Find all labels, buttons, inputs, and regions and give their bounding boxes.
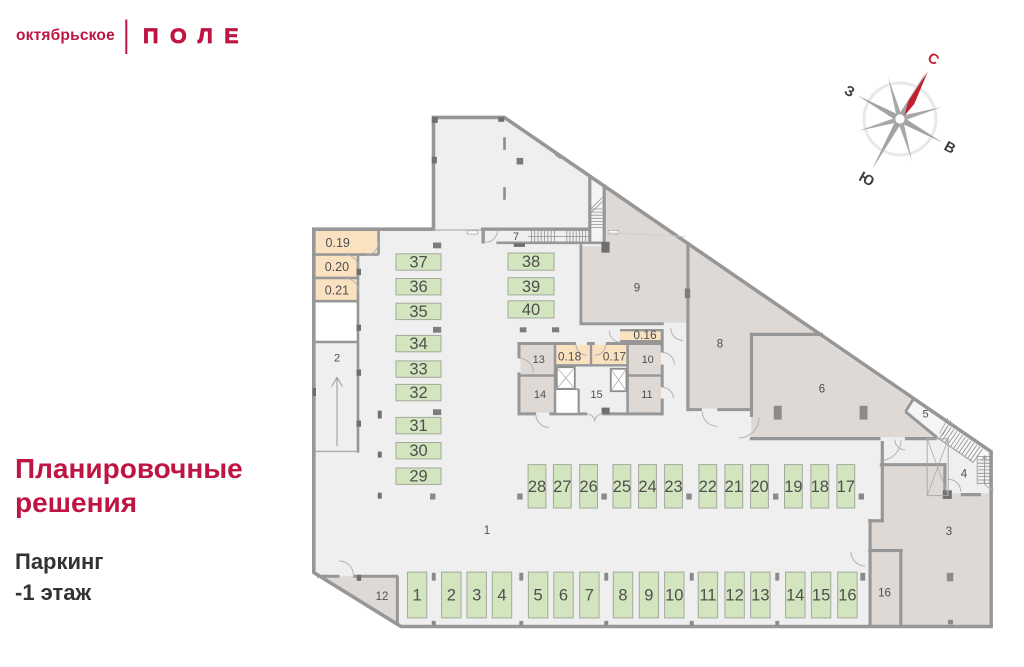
svg-text:0.18: 0.18 <box>558 349 582 363</box>
svg-text:1: 1 <box>413 587 422 605</box>
svg-text:7: 7 <box>513 231 519 243</box>
svg-text:3: 3 <box>946 526 952 538</box>
svg-text:10: 10 <box>642 354 654 366</box>
svg-text:5: 5 <box>534 587 543 605</box>
svg-text:19: 19 <box>784 478 802 496</box>
svg-text:21: 21 <box>725 478 743 496</box>
svg-text:9: 9 <box>644 587 653 605</box>
svg-text:32: 32 <box>409 384 427 402</box>
svg-text:40: 40 <box>522 301 540 319</box>
svg-text:23: 23 <box>664 478 682 496</box>
svg-text:13: 13 <box>751 587 769 605</box>
svg-text:39: 39 <box>522 278 540 296</box>
svg-text:1: 1 <box>484 525 490 537</box>
svg-text:24: 24 <box>638 478 656 496</box>
svg-text:33: 33 <box>409 361 427 379</box>
svg-text:Планировочные: Планировочные <box>15 453 243 484</box>
svg-text:0.20: 0.20 <box>325 260 349 274</box>
svg-text:26: 26 <box>579 478 597 496</box>
svg-text:34: 34 <box>409 335 427 353</box>
svg-text:25: 25 <box>613 478 631 496</box>
svg-text:8: 8 <box>618 587 627 605</box>
svg-text:16: 16 <box>838 587 856 605</box>
svg-text:решения: решения <box>15 487 137 518</box>
svg-text:2: 2 <box>447 587 456 605</box>
svg-text:0.21: 0.21 <box>325 284 349 298</box>
svg-text:17: 17 <box>837 478 855 496</box>
svg-text:15: 15 <box>590 389 602 401</box>
svg-text:3: 3 <box>472 587 481 605</box>
svg-text:0.17: 0.17 <box>603 349 627 363</box>
svg-text:11: 11 <box>641 389 652 401</box>
svg-text:29: 29 <box>409 468 427 486</box>
svg-text:0.16: 0.16 <box>633 328 657 342</box>
svg-text:22: 22 <box>699 478 717 496</box>
svg-text:35: 35 <box>409 303 427 321</box>
svg-text:36: 36 <box>409 278 427 296</box>
svg-text:30: 30 <box>409 442 427 460</box>
svg-text:2: 2 <box>334 353 340 365</box>
svg-text:12: 12 <box>376 591 389 603</box>
svg-text:13: 13 <box>533 354 545 366</box>
svg-text:12: 12 <box>725 587 743 605</box>
svg-text:38: 38 <box>522 253 540 271</box>
svg-text:ПОЛЕ: ПОЛЕ <box>143 24 250 48</box>
svg-text:7: 7 <box>585 587 594 605</box>
svg-text:11: 11 <box>699 587 716 605</box>
svg-text:6: 6 <box>819 384 825 396</box>
svg-text:-1 этаж: -1 этаж <box>15 580 92 605</box>
svg-text:0.19: 0.19 <box>326 236 350 250</box>
svg-text:10: 10 <box>665 587 683 605</box>
svg-text:14: 14 <box>786 587 804 605</box>
svg-text:4: 4 <box>497 587 506 605</box>
svg-text:16: 16 <box>878 588 891 600</box>
svg-text:14: 14 <box>534 389 546 401</box>
svg-text:18: 18 <box>811 478 829 496</box>
svg-text:27: 27 <box>553 478 571 496</box>
svg-text:9: 9 <box>634 283 640 295</box>
svg-text:15: 15 <box>812 587 830 605</box>
svg-text:6: 6 <box>559 587 568 605</box>
svg-text:4: 4 <box>961 469 968 481</box>
svg-text:20: 20 <box>750 478 768 496</box>
svg-text:октябрьское: октябрьское <box>16 27 115 44</box>
svg-text:31: 31 <box>409 417 427 435</box>
svg-text:8: 8 <box>717 339 723 351</box>
svg-text:28: 28 <box>528 478 546 496</box>
svg-text:37: 37 <box>409 254 427 272</box>
svg-text:Паркинг: Паркинг <box>15 549 103 574</box>
svg-text:5: 5 <box>922 409 928 421</box>
